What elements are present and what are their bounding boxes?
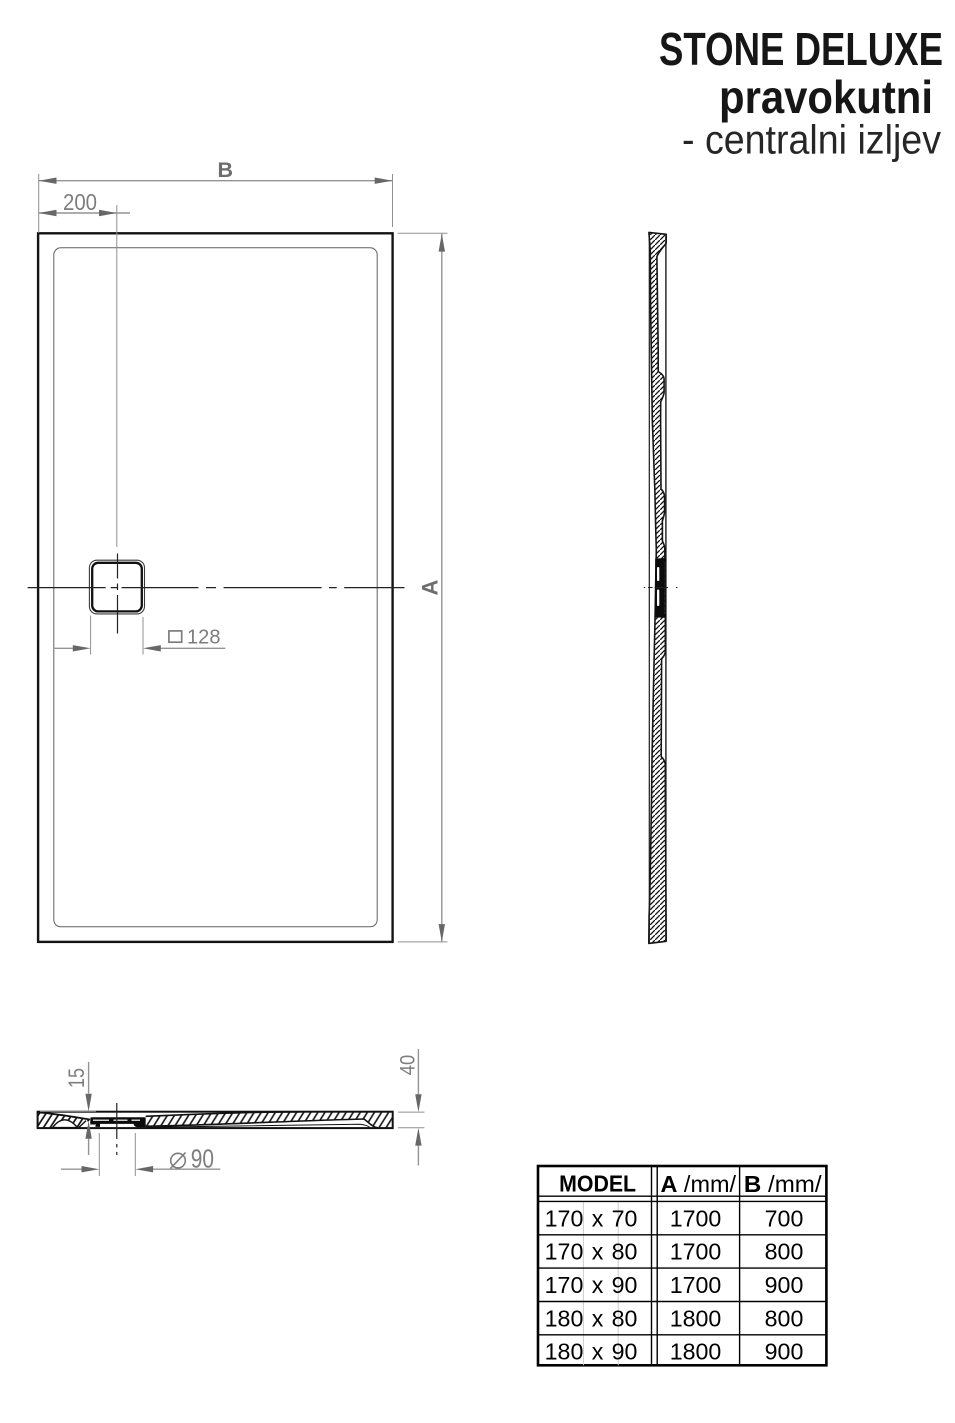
svg-text:40: 40 (396, 1055, 419, 1076)
svg-text:800: 800 (765, 1305, 804, 1331)
svg-text:B /mm/: B /mm/ (744, 1171, 822, 1197)
svg-text:200: 200 (63, 189, 97, 215)
svg-text:B: B (218, 158, 234, 182)
svg-text:1800: 1800 (670, 1339, 722, 1365)
svg-text:A: A (417, 579, 442, 595)
svg-text:90: 90 (191, 1146, 214, 1174)
svg-text:80: 80 (612, 1239, 638, 1265)
svg-text:180: 180 (545, 1339, 584, 1365)
svg-text:170: 170 (545, 1205, 584, 1231)
svg-text:x: x (592, 1205, 604, 1231)
svg-text:170: 170 (545, 1239, 584, 1265)
svg-text:x: x (592, 1272, 604, 1298)
svg-text:180: 180 (545, 1305, 584, 1331)
svg-text:170: 170 (545, 1272, 584, 1298)
svg-text:80: 80 (612, 1305, 638, 1331)
svg-text:1700: 1700 (670, 1205, 722, 1231)
svg-text:- centralni izljev: - centralni izljev (682, 117, 942, 163)
svg-text:MODEL: MODEL (559, 1171, 636, 1197)
svg-text:1800: 1800 (670, 1305, 722, 1331)
svg-text:90: 90 (612, 1339, 638, 1365)
svg-text:1700: 1700 (670, 1272, 722, 1298)
svg-text:900: 900 (765, 1272, 804, 1298)
svg-text:900: 900 (765, 1339, 804, 1365)
svg-text:1700: 1700 (670, 1239, 722, 1265)
svg-text:x: x (592, 1305, 604, 1331)
svg-text:90: 90 (612, 1272, 638, 1298)
svg-text:x: x (592, 1339, 604, 1365)
svg-text:STONE DELUXE: STONE DELUXE (659, 23, 943, 75)
svg-text:x: x (592, 1239, 604, 1265)
svg-text:800: 800 (765, 1239, 804, 1265)
svg-text:A /mm/: A /mm/ (661, 1171, 737, 1197)
svg-text:700: 700 (765, 1205, 804, 1231)
svg-text:15: 15 (64, 1068, 89, 1088)
svg-text:pravokutni: pravokutni (719, 71, 933, 123)
svg-text:128: 128 (187, 627, 221, 649)
svg-text:70: 70 (612, 1205, 638, 1231)
